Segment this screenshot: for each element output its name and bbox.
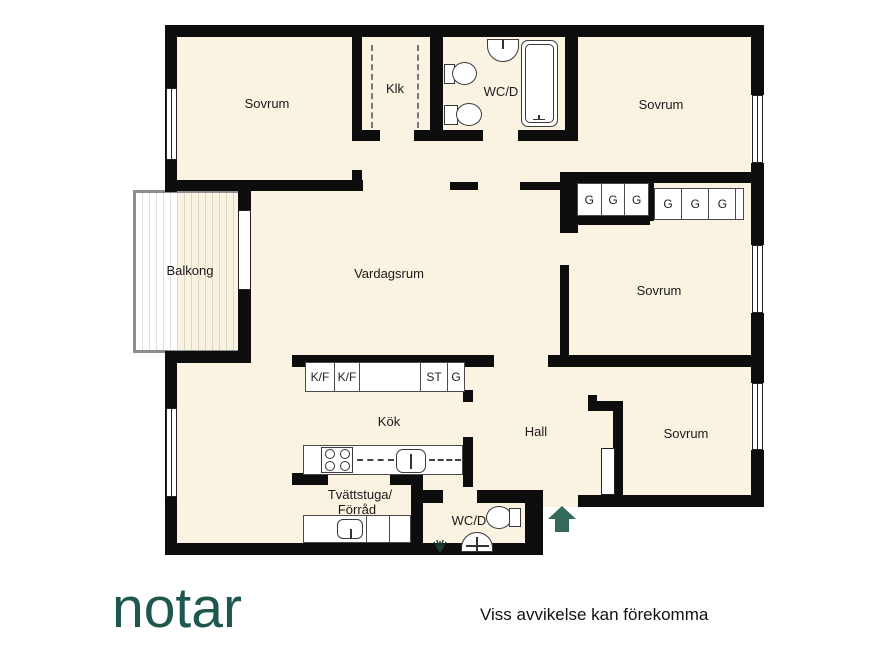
room-label-sovrum-mid: Sovrum bbox=[637, 283, 682, 299]
kitchen-appliance-row: K/F K/F ST G bbox=[305, 362, 465, 392]
wall bbox=[165, 25, 764, 37]
entrance-arrow-icon bbox=[548, 506, 576, 532]
notar-logo: notar bbox=[112, 575, 242, 641]
wall bbox=[751, 450, 764, 495]
plant-icon bbox=[431, 535, 449, 553]
wall bbox=[751, 25, 764, 95]
laundry-machine bbox=[367, 516, 390, 542]
room-label-kok: Kök bbox=[378, 414, 400, 430]
wall bbox=[165, 180, 363, 191]
room-label-wcd-top: WC/D bbox=[484, 84, 519, 100]
wall bbox=[411, 473, 423, 555]
cabinet bbox=[360, 363, 421, 391]
counter-line bbox=[357, 459, 394, 461]
room-label-hall: Hall bbox=[525, 424, 547, 440]
wall bbox=[525, 490, 543, 555]
fridge-freezer: K/F bbox=[306, 363, 335, 391]
wall bbox=[423, 490, 443, 503]
room-label-sovrum-tl: Sovrum bbox=[245, 96, 290, 112]
fridge-freezer: K/F bbox=[335, 363, 360, 391]
kitchen-sink-icon bbox=[396, 449, 426, 473]
room-label-tvattstuga-1: Tvättstuga/ bbox=[328, 487, 392, 503]
bathtub-icon bbox=[521, 40, 558, 127]
stove-icon bbox=[321, 447, 353, 473]
balcony-door-window bbox=[238, 210, 251, 290]
wall bbox=[352, 130, 380, 141]
laundry-sink-icon bbox=[337, 519, 363, 539]
window bbox=[166, 88, 177, 160]
wall bbox=[560, 183, 578, 233]
room-label-sovrum-tr: Sovrum bbox=[639, 97, 684, 113]
door-leaf bbox=[601, 448, 615, 495]
wall bbox=[352, 170, 362, 191]
wardrobe-g: G bbox=[625, 184, 648, 215]
wall bbox=[560, 265, 569, 360]
wardrobe-g: G bbox=[578, 184, 602, 215]
outside-area bbox=[543, 507, 783, 565]
room-label-sovrum-br: Sovrum bbox=[664, 426, 709, 442]
wall bbox=[560, 348, 568, 357]
room-label-balkong: Balkong bbox=[167, 263, 214, 279]
window bbox=[752, 95, 763, 163]
wall bbox=[751, 313, 764, 383]
room-label-vardagsrum: Vardagsrum bbox=[354, 266, 424, 282]
laundry-machine bbox=[390, 516, 410, 542]
wardrobe-g: G bbox=[602, 184, 626, 215]
wall bbox=[463, 437, 473, 487]
wall bbox=[165, 351, 251, 363]
wall bbox=[578, 495, 764, 507]
window bbox=[752, 245, 763, 313]
toilet-tank-icon bbox=[509, 508, 521, 527]
wardrobe-g: G bbox=[709, 189, 736, 219]
wall bbox=[430, 130, 483, 141]
wardrobe-g: G bbox=[448, 363, 464, 391]
wall bbox=[430, 37, 443, 137]
toilet-bowl-icon bbox=[456, 103, 482, 126]
wall bbox=[560, 172, 764, 183]
floor-plan-page: G G G G G G K/F K/F ST G bbox=[0, 0, 889, 663]
wall bbox=[450, 182, 478, 190]
wall bbox=[588, 395, 597, 407]
room-label-wcd-bottom: WC/D bbox=[452, 513, 487, 529]
wall bbox=[548, 355, 764, 367]
toilet-bowl-icon bbox=[452, 62, 477, 85]
closet-rail-line bbox=[417, 45, 419, 128]
wall bbox=[238, 188, 251, 210]
wall bbox=[352, 37, 362, 137]
wall bbox=[565, 37, 578, 141]
wardrobe-g: G bbox=[655, 189, 682, 219]
window bbox=[752, 383, 763, 450]
wardrobe-row: G G G bbox=[654, 188, 744, 220]
cleaning-cabinet: ST bbox=[421, 363, 448, 391]
window bbox=[166, 408, 177, 497]
wardrobe-row: G G G bbox=[577, 183, 649, 216]
room-label-klk: Klk bbox=[386, 81, 404, 97]
wardrobe-g: G bbox=[682, 189, 709, 219]
room-label-tvattstuga-2: Förråd bbox=[338, 502, 376, 518]
disclaimer-text: Viss avvikelse kan förekomma bbox=[480, 605, 708, 625]
wall bbox=[238, 290, 251, 353]
wardrobe-narrow bbox=[736, 189, 743, 219]
counter-line bbox=[429, 459, 461, 461]
closet-rail-line bbox=[371, 45, 373, 128]
